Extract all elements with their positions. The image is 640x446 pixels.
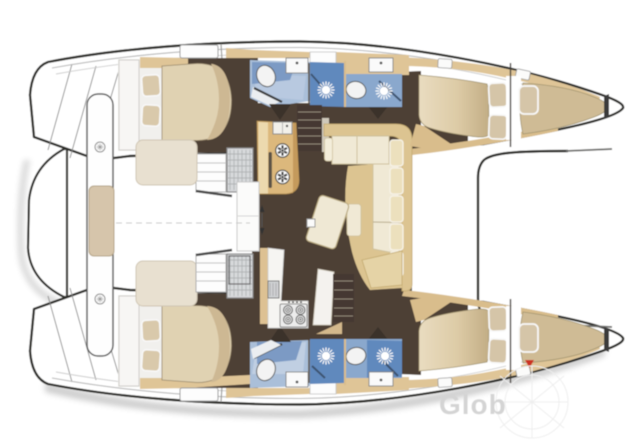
svg-text:Glob: Glob: [439, 389, 507, 420]
